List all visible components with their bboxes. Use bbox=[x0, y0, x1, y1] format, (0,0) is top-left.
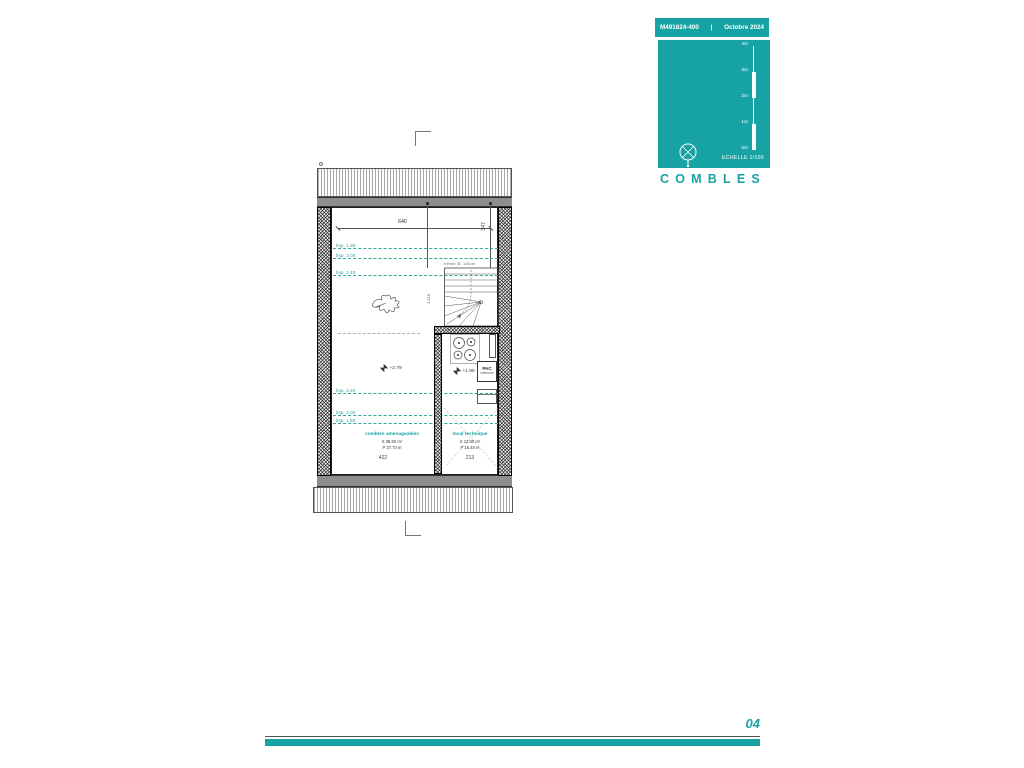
plan-date: Octobre 2024 bbox=[724, 24, 764, 31]
roof-hatch-top bbox=[317, 168, 512, 197]
room-name-technique: local technique bbox=[430, 432, 510, 437]
hsp-label: hsp. 2.00 bbox=[336, 410, 355, 415]
scale-tick-2m: 2m bbox=[732, 94, 748, 99]
stair-dimension: 1.116 bbox=[426, 294, 431, 304]
partition-wall-vertical bbox=[434, 334, 442, 474]
equipment-box-line bbox=[478, 394, 496, 395]
title-block-header: M491824-400 | Octobre 2024 bbox=[655, 18, 769, 37]
level-marker-technique: +1.95 bbox=[453, 367, 475, 375]
hsp-label: hsp. 1.80 bbox=[336, 243, 355, 248]
scale-bar-segment bbox=[752, 72, 756, 98]
scale-tick-0m: 0m bbox=[732, 146, 748, 151]
pac-unit: PAC intérieure bbox=[477, 361, 497, 382]
page-title: COMBLES bbox=[660, 172, 770, 186]
scale-label: ECHELLE 1/100 bbox=[698, 155, 764, 161]
partition-wall-horizontal bbox=[434, 326, 500, 334]
water-heater-icon bbox=[450, 334, 480, 364]
legend-panel: 4m 3m 2m 1m 0m ECHELLE 1/100 bbox=[658, 40, 770, 168]
level-point-icon bbox=[453, 367, 461, 375]
scale-bar-segment bbox=[752, 124, 756, 150]
staircase bbox=[443, 266, 500, 328]
compass-icon bbox=[676, 142, 700, 168]
level-value: +2.79 bbox=[390, 366, 402, 371]
scale-tick-4m: 4m bbox=[732, 42, 748, 47]
wall-band-top bbox=[317, 197, 512, 207]
survey-point-icon bbox=[319, 162, 323, 166]
dimension-top-value: 640 bbox=[398, 219, 407, 225]
hsp-label: hsp. 1.80 bbox=[336, 418, 355, 423]
duct-rect bbox=[489, 334, 496, 358]
scale-tick-3m: 3m bbox=[732, 68, 748, 73]
wall-band-bottom bbox=[317, 475, 512, 487]
corner-mark-top bbox=[415, 131, 431, 146]
roof-hatch-bottom bbox=[313, 487, 513, 513]
corner-mark-bottom bbox=[405, 521, 421, 536]
room-perimeter-combles: P 37.73 m bbox=[352, 445, 432, 450]
project-reference: M491824-400 bbox=[660, 24, 699, 31]
room-perimeter-technique: P 16.48 m bbox=[430, 445, 510, 450]
level-point-icon bbox=[380, 364, 388, 372]
hsp-label: hsp. 2.40 bbox=[336, 388, 355, 393]
dimension-bottom-left: 422 bbox=[343, 455, 423, 461]
room-surface-technique: S 13.80 m² bbox=[430, 439, 510, 444]
level-marker-main: +2.79 bbox=[380, 364, 402, 372]
page-number: 04 bbox=[700, 716, 760, 731]
hsp-line bbox=[333, 248, 498, 249]
room-name-combles: combles aménageables bbox=[352, 432, 432, 437]
header-separator: | bbox=[711, 24, 713, 31]
hsp-line bbox=[333, 393, 498, 394]
footer-accent-bar bbox=[265, 739, 760, 746]
dimension-right-value: 347 bbox=[481, 222, 487, 231]
footer-rule bbox=[265, 736, 760, 737]
dimension-line-top bbox=[338, 228, 491, 229]
hsp-label: hsp. 2.00 bbox=[336, 253, 355, 258]
dimension-bottom-right: 213 bbox=[430, 455, 510, 461]
exterior-wall-left bbox=[317, 207, 331, 476]
level-value: +1.95 bbox=[463, 369, 475, 374]
hsp-line bbox=[333, 258, 498, 259]
hsp-label: hsp. 2.40 bbox=[336, 270, 355, 275]
sketch-annotation bbox=[366, 291, 406, 319]
dimension-dot bbox=[489, 202, 492, 205]
page: M491824-400 | Octobre 2024 4m 3m 2m 1m 0… bbox=[0, 0, 1024, 768]
scale-tick-1m: 1m bbox=[732, 120, 748, 125]
room-surface-combles: S 38.50 m² bbox=[352, 439, 432, 444]
construction-line bbox=[338, 333, 420, 334]
equipment-box bbox=[477, 389, 497, 404]
pac-sublabel: intérieure bbox=[478, 371, 496, 375]
dimension-dot bbox=[426, 202, 429, 205]
